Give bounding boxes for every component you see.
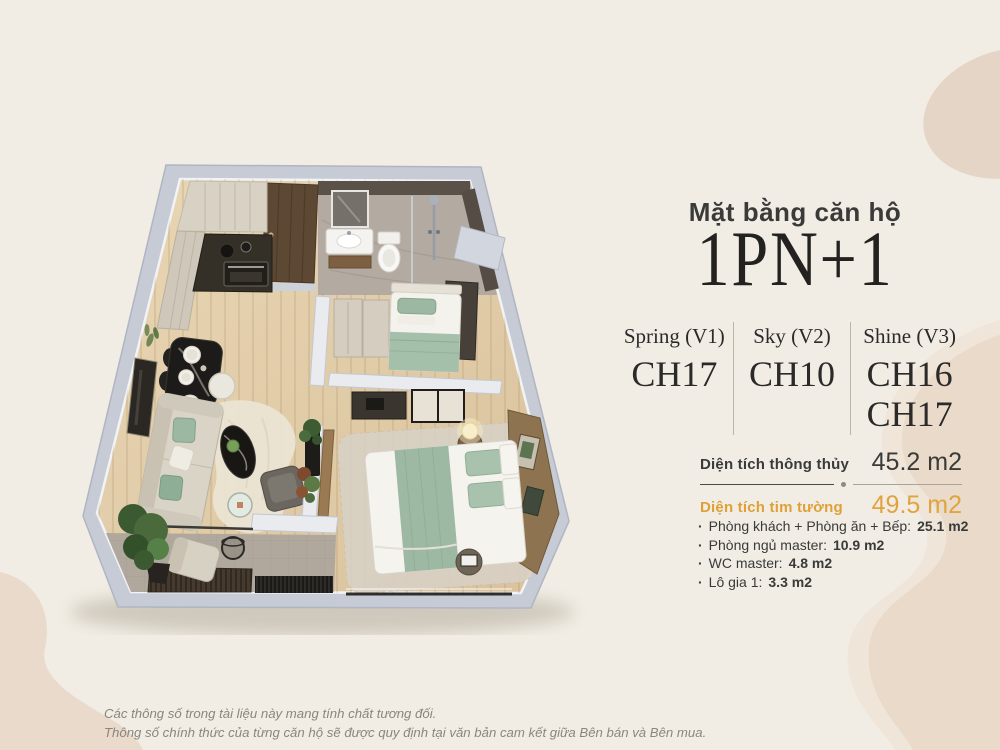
floor-plan-render — [50, 130, 600, 635]
room-label: Phòng ngủ master: — [709, 536, 827, 555]
single-bed — [389, 283, 462, 372]
list-item: · Phòng khách + Phòng ăn + Bếp: 25.1 m2 — [698, 517, 988, 536]
area-divider — [700, 482, 962, 487]
area-summary: Diện tích thông thủy 45.2 m2 Diện tích t… — [700, 448, 962, 520]
variant-unit: CH17 — [853, 394, 966, 434]
list-item: · Phòng ngủ master: 10.9 m2 — [698, 536, 988, 555]
bullet-icon: · — [698, 554, 703, 573]
room-value: 25.1 m2 — [917, 517, 968, 536]
variant-column-shine: Shine (V3) CH16 CH17 — [850, 322, 968, 435]
disclaimer: Các thông số trong tài liệu này mang tín… — [104, 705, 824, 742]
list-item: · Lô gia 1: 3.3 m2 — [698, 573, 988, 592]
disclaimer-line-1: Các thông số trong tài liệu này mang tín… — [104, 705, 824, 724]
area-row-net: Diện tích thông thủy 45.2 m2 — [700, 448, 962, 477]
master-bed — [365, 440, 527, 575]
sofa-pillow-green — [173, 418, 196, 443]
poster-canvas: Mặt bằng căn hộ 1PN+1 Spring (V1) CH17 S… — [0, 0, 1000, 750]
variant-column-sky: Sky (V2) CH10 — [733, 322, 851, 435]
bullet-icon: · — [698, 517, 703, 536]
room-value: 4.8 m2 — [789, 554, 833, 573]
disclaimer-line-2: Thông số chính thức của từng căn hộ sẽ đ… — [104, 724, 824, 743]
fruit-bowl — [227, 440, 239, 452]
variant-name: Spring (V1) — [618, 324, 731, 349]
room-area-list: · Phòng khách + Phòng ăn + Bếp: 25.1 m2 … — [698, 517, 988, 591]
variant-column-spring: Spring (V1) CH17 — [616, 322, 733, 435]
room-label: Phòng khách + Phòng ăn + Bếp: — [709, 517, 911, 536]
bathroom-vanity — [326, 229, 373, 268]
area-value: 49.5 m2 — [872, 491, 962, 520]
variant-unit: CH10 — [736, 354, 849, 394]
sofa-pillow-green — [159, 475, 183, 501]
wire-basket — [222, 537, 244, 559]
room-value: 10.9 m2 — [833, 536, 884, 555]
area-label: Diện tích thông thủy — [700, 456, 849, 477]
variant-name: Shine (V3) — [853, 324, 966, 349]
area-value: 45.2 m2 — [872, 448, 962, 477]
variant-table: Spring (V1) CH17 Sky (V2) CH10 Shine (V3… — [616, 322, 968, 435]
room-value: 3.3 m2 — [768, 573, 812, 592]
list-item: · WC master: 4.8 m2 — [698, 554, 988, 573]
bullet-icon: · — [698, 536, 703, 555]
room-label: WC master: — [709, 554, 783, 573]
bedside-lamp — [462, 423, 478, 439]
blob-top-right-circle — [909, 29, 1000, 197]
toilet — [378, 232, 400, 272]
area-row-gross: Diện tích tim tường 49.5 m2 — [700, 491, 962, 520]
variant-unit: CH16 — [853, 354, 966, 394]
variant-unit: CH17 — [618, 354, 731, 394]
bullet-icon: · — [698, 573, 703, 592]
stool — [209, 373, 235, 399]
divider-dot-icon — [841, 482, 846, 487]
plan-title: 1PN+1 — [651, 220, 940, 298]
room-label: Lô gia 1: — [709, 573, 763, 592]
variant-name: Sky (V2) — [736, 324, 849, 349]
